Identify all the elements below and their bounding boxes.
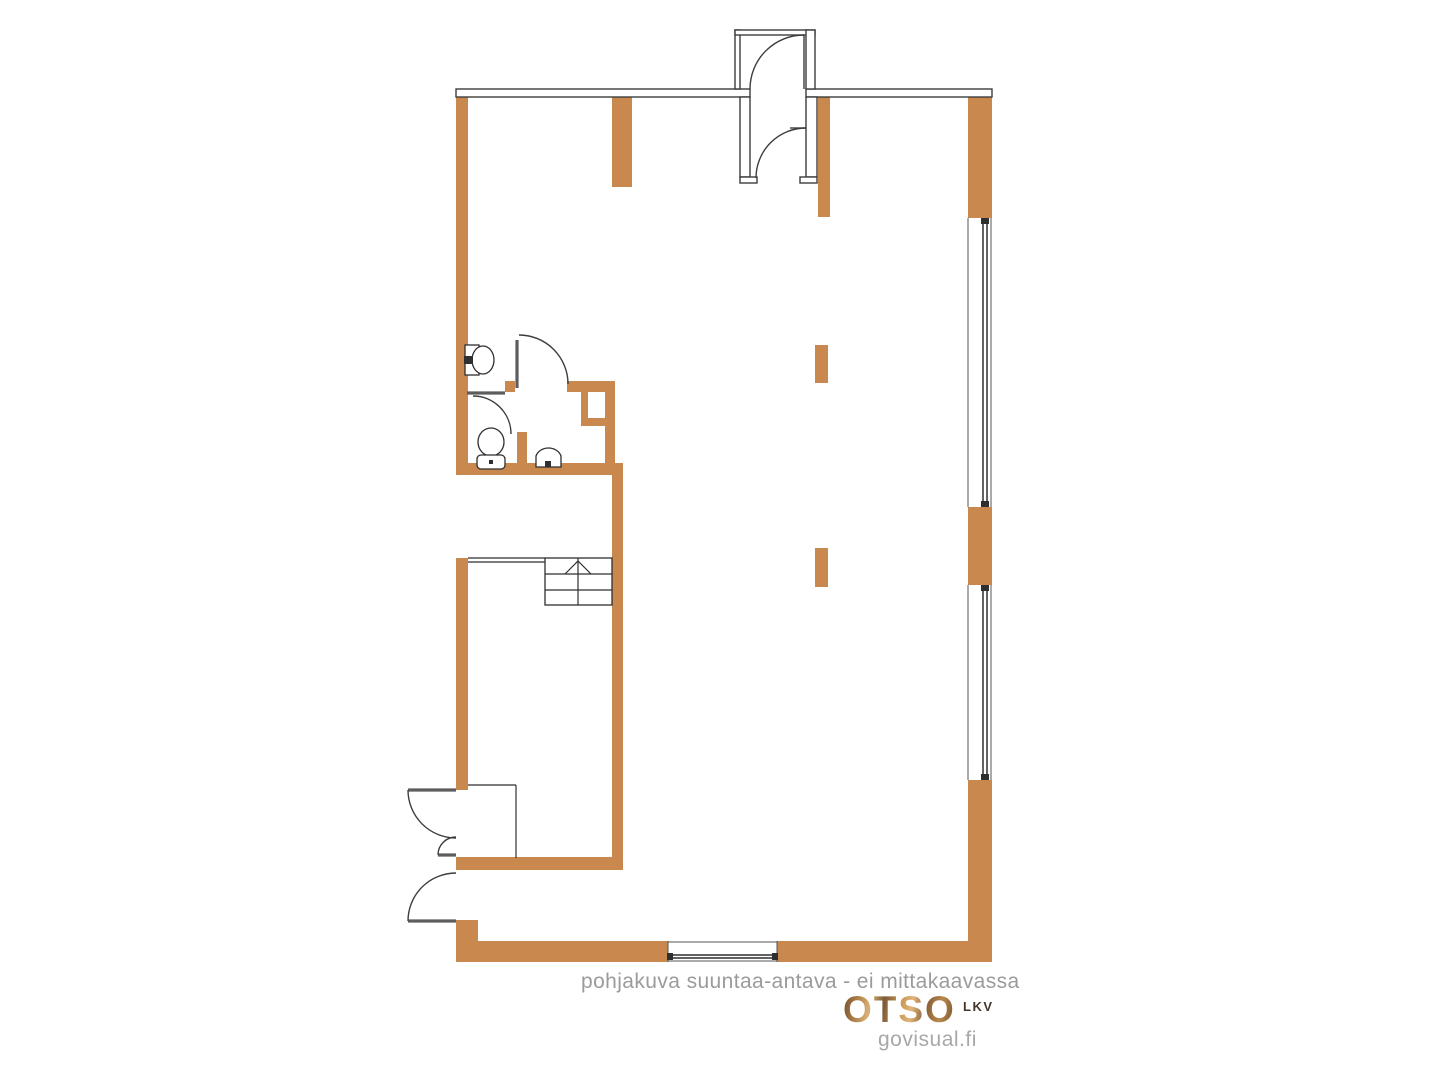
floorplan-svg — [0, 0, 1440, 1080]
right-wall-top — [968, 97, 992, 218]
floorplan-page: { "canvas":{"width":1440,"height":1080,"… — [0, 0, 1440, 1080]
right-window-2-end-top — [981, 585, 989, 591]
washbasin-tap — [464, 356, 473, 364]
column-pier-a — [815, 345, 828, 383]
bottom-wall-left — [456, 941, 668, 962]
bath-top-wall-right — [567, 381, 615, 392]
washbasin-bowl — [472, 346, 494, 374]
top-interior-stub-left — [612, 97, 632, 187]
toilet-bowl — [478, 428, 504, 456]
top-wall-left-segment — [456, 89, 750, 97]
door-jamb-left — [740, 97, 750, 177]
otso-logo: OTSO — [843, 991, 956, 1028]
lower-left-wall — [456, 558, 468, 790]
right-window-1-end-top — [981, 218, 989, 224]
mid-horizontal-wall — [456, 857, 623, 870]
bath-right-wall — [605, 392, 615, 475]
column-pier-b — [815, 548, 828, 587]
vestibule-top-wall — [735, 30, 815, 35]
otso-logo-text: OTSO — [843, 991, 956, 1028]
top-interior-stub-right — [818, 97, 830, 217]
toilet-button — [489, 460, 493, 464]
right-wall-pier — [968, 507, 992, 585]
floorplan-drawing — [0, 0, 1440, 1085]
bottom-window-end-right — [772, 953, 778, 960]
entry-door-b-arc — [408, 873, 456, 921]
left-wall-upper — [456, 97, 468, 475]
bottom-wall-right — [777, 941, 992, 962]
utility-sink-tap — [545, 461, 551, 467]
bath-top-wall-mid — [505, 381, 515, 392]
top-wall-right-segment — [806, 89, 992, 97]
otso-logo-lkv: LKV — [963, 999, 994, 1014]
vestibule-right-wall — [806, 30, 815, 89]
right-window-2-end-bottom — [981, 774, 989, 780]
door-jamb-right — [806, 97, 817, 177]
lower-room-right-wall — [612, 463, 623, 870]
inner-door-arc — [756, 128, 806, 178]
bottom-window-end-left — [667, 953, 673, 960]
bath-door-arc — [519, 335, 568, 384]
right-window-1-end-bottom — [981, 501, 989, 507]
right-wall-bottom — [968, 780, 992, 962]
door-jamb-left-foot — [740, 177, 757, 183]
door-jamb-right-foot — [800, 177, 817, 183]
entry-door-a-arc — [408, 790, 456, 838]
entry-door-a2-arc — [438, 837, 456, 855]
vestibule-left-wall — [735, 30, 740, 89]
wc-partition — [517, 432, 527, 475]
vestibule-door-arc — [750, 35, 804, 89]
duct-niche-stub — [581, 392, 588, 418]
govisual-credit: govisual.fi — [878, 1028, 977, 1052]
